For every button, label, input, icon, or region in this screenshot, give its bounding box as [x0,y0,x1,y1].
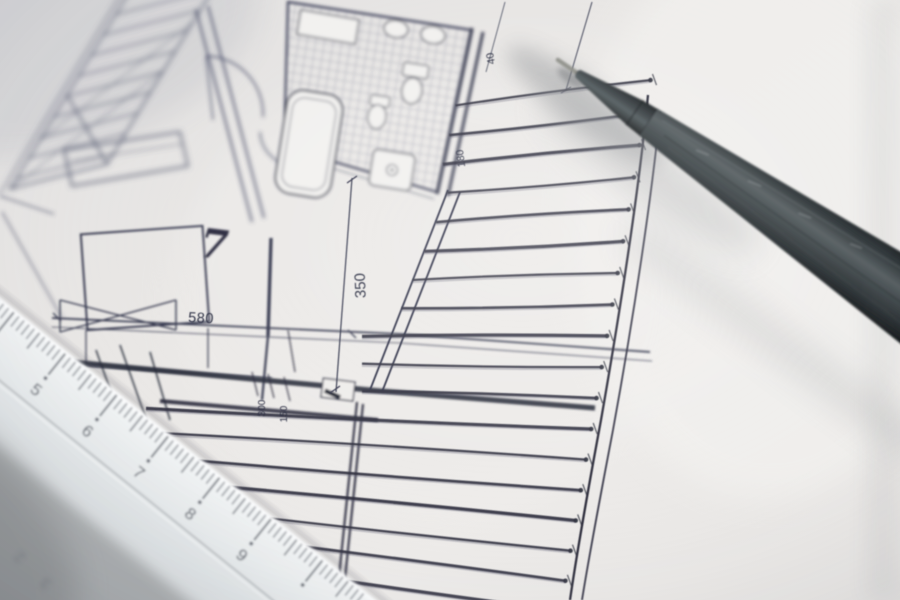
photo-stage: 580 350 300 150 180 40 7 456789 2 3 [0,0,900,600]
photo-canvas: 580 350 300 150 180 40 7 456789 2 3 [0,0,900,600]
vignette [0,0,900,600]
edge-shade-right [865,0,900,600]
